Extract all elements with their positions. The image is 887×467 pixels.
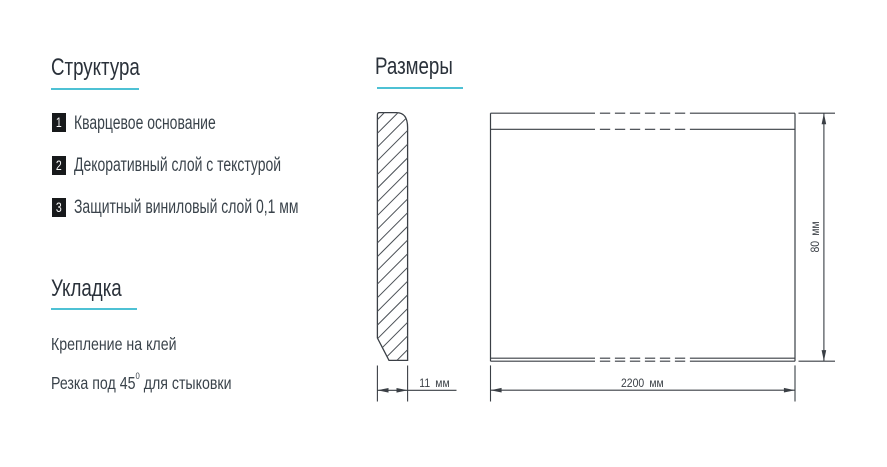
svg-text:2200 мм: 2200 мм xyxy=(621,377,664,390)
svg-text:11 мм: 11 мм xyxy=(419,377,449,390)
svg-text:80 мм: 80 мм xyxy=(809,221,822,252)
